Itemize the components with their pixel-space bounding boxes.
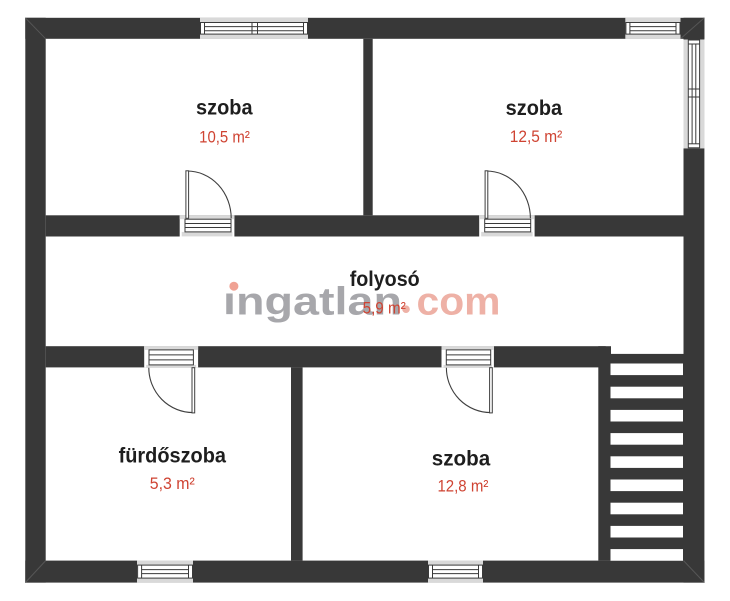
svg-text:szoba: szoba [196,97,253,120]
svg-text:folyosó: folyosó [350,268,420,291]
svg-text:com: com [417,280,501,324]
svg-text:10,5 m²: 10,5 m² [199,128,250,147]
svg-text:12,8 m²: 12,8 m² [437,476,488,495]
svg-text:5,3 m²: 5,3 m² [150,474,195,493]
svg-text:fürdőszoba: fürdőszoba [119,444,227,467]
svg-text:szoba: szoba [506,97,563,120]
svg-text:szoba: szoba [432,448,491,471]
svg-text:5,9 m²: 5,9 m² [363,299,406,318]
svg-text:12,5 m²: 12,5 m² [510,127,563,146]
